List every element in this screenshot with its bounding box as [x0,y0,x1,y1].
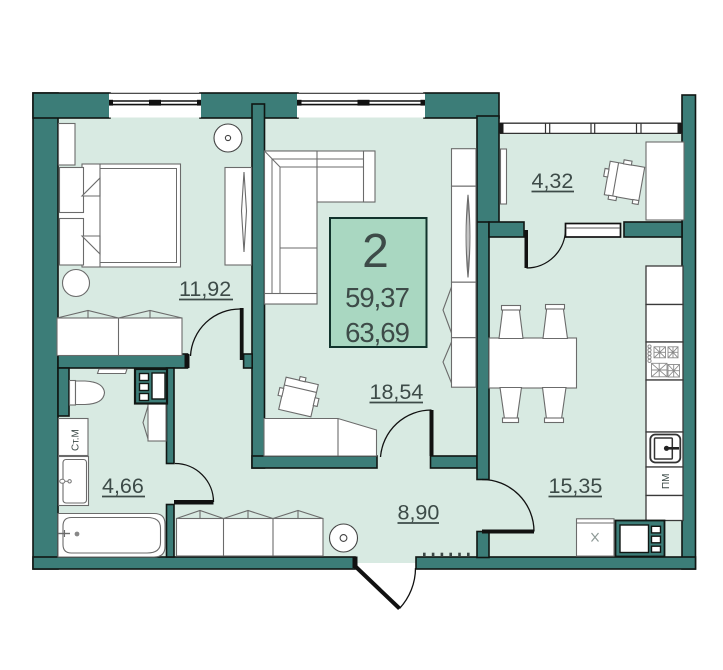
svg-text:2: 2 [362,225,389,278]
svg-text:8,90: 8,90 [398,501,440,525]
svg-text:ПМ: ПМ [661,473,672,489]
svg-text:59,37: 59,37 [345,282,409,313]
svg-text:Ст.М: Ст.М [71,429,82,451]
svg-text:11,92: 11,92 [179,277,231,301]
svg-text:4,32: 4,32 [532,169,574,193]
svg-text:18,54: 18,54 [370,380,424,404]
svg-text:63,69: 63,69 [345,317,409,348]
svg-text:4,66: 4,66 [102,474,144,498]
svg-text:15,35: 15,35 [549,474,603,498]
